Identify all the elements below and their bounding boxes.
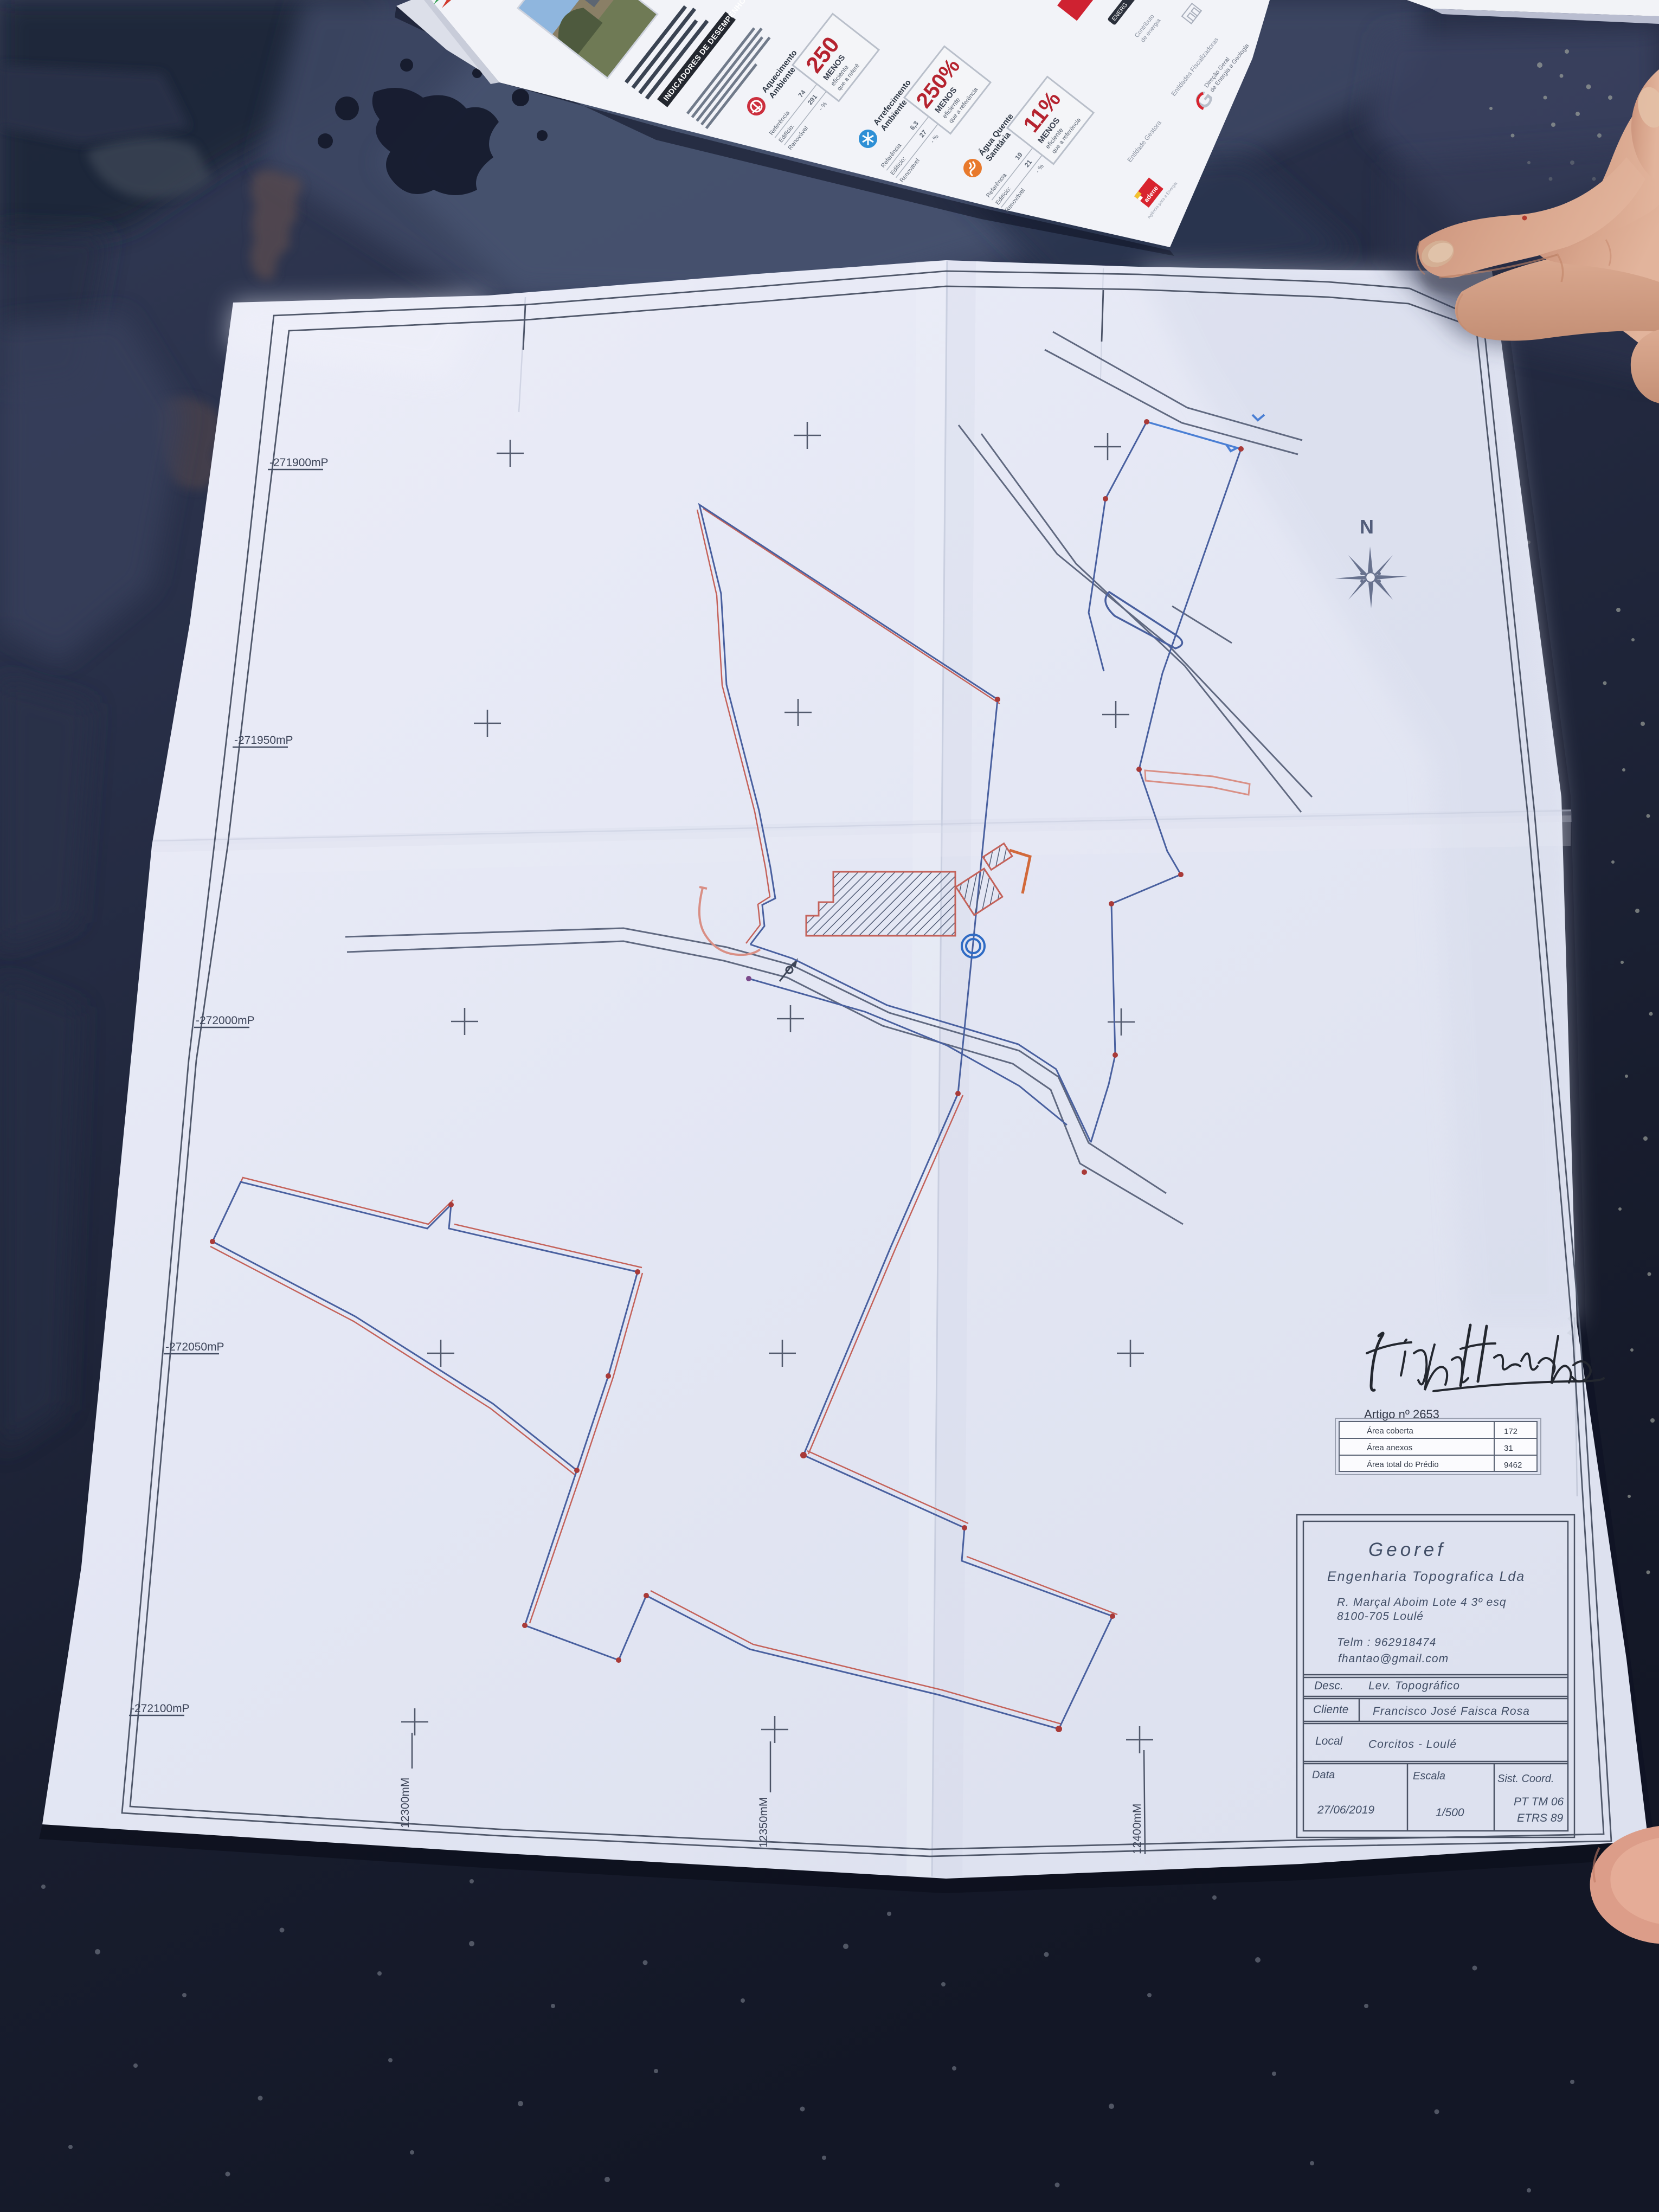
svg-text:31: 31 <box>1504 1444 1513 1453</box>
svg-text:Francisco José Faisca Rosa: Francisco José Faisca Rosa <box>1373 1705 1530 1718</box>
svg-text:Lev. Topográfico: Lev. Topográfico <box>1368 1680 1460 1692</box>
svg-text:fhantao@gmail.com: fhantao@gmail.com <box>1338 1652 1449 1665</box>
svg-text:Georef: Georef <box>1368 1539 1446 1560</box>
svg-text:12300mM: 12300mM <box>399 1778 411 1828</box>
svg-text:27/06/2019: 27/06/2019 <box>1317 1804 1374 1816</box>
svg-text:N: N <box>1360 516 1374 538</box>
svg-text:Sist. Coord.: Sist. Coord. <box>1497 1773 1554 1785</box>
svg-text:1/500: 1/500 <box>1436 1806 1464 1819</box>
svg-text:Cliente: Cliente <box>1313 1703 1348 1716</box>
svg-text:12400mM: 12400mM <box>1131 1804 1143 1854</box>
svg-text:Área coberta: Área coberta <box>1367 1426 1414 1436</box>
svg-text:Engenharia Topografica Lda: Engenharia Topografica Lda <box>1327 1569 1525 1584</box>
svg-text:Data: Data <box>1312 1769 1335 1781</box>
svg-text:9462: 9462 <box>1504 1461 1522 1470</box>
svg-text:-272100mP: -272100mP <box>131 1702 190 1715</box>
svg-text:-271950mP: -271950mP <box>234 734 293 747</box>
svg-text:Artigo nº 2653: Artigo nº 2653 <box>1364 1407 1439 1421</box>
svg-text:Local: Local <box>1315 1735 1343 1747</box>
svg-text:PT TM 06: PT TM 06 <box>1514 1796 1564 1808</box>
svg-text:Desc.: Desc. <box>1314 1680 1343 1692</box>
svg-text:-272000mP: -272000mP <box>196 1014 255 1027</box>
svg-text:12350mM: 12350mM <box>757 1797 770 1848</box>
svg-text:-271900mP: -271900mP <box>269 456 329 469</box>
svg-text:Área total do Prédio: Área total do Prédio <box>1367 1460 1439 1469</box>
svg-text:Escala: Escala <box>1413 1770 1445 1782</box>
svg-text:R. Marçal Aboim Lote 4 3º esq: R. Marçal Aboim Lote 4 3º esq <box>1337 1596 1507 1609</box>
svg-text:ETRS 89: ETRS 89 <box>1517 1812 1564 1824</box>
svg-text:Telm : 962918474: Telm : 962918474 <box>1337 1636 1436 1649</box>
svg-text:Área anexos: Área anexos <box>1367 1443 1412 1452</box>
svg-text:-272050mP: -272050mP <box>165 1341 224 1353</box>
svg-text:Corcitos - Loulé: Corcitos - Loulé <box>1368 1738 1457 1751</box>
svg-text:8100-705 Loulé: 8100-705 Loulé <box>1337 1610 1424 1623</box>
svg-text:172: 172 <box>1504 1427 1517 1436</box>
